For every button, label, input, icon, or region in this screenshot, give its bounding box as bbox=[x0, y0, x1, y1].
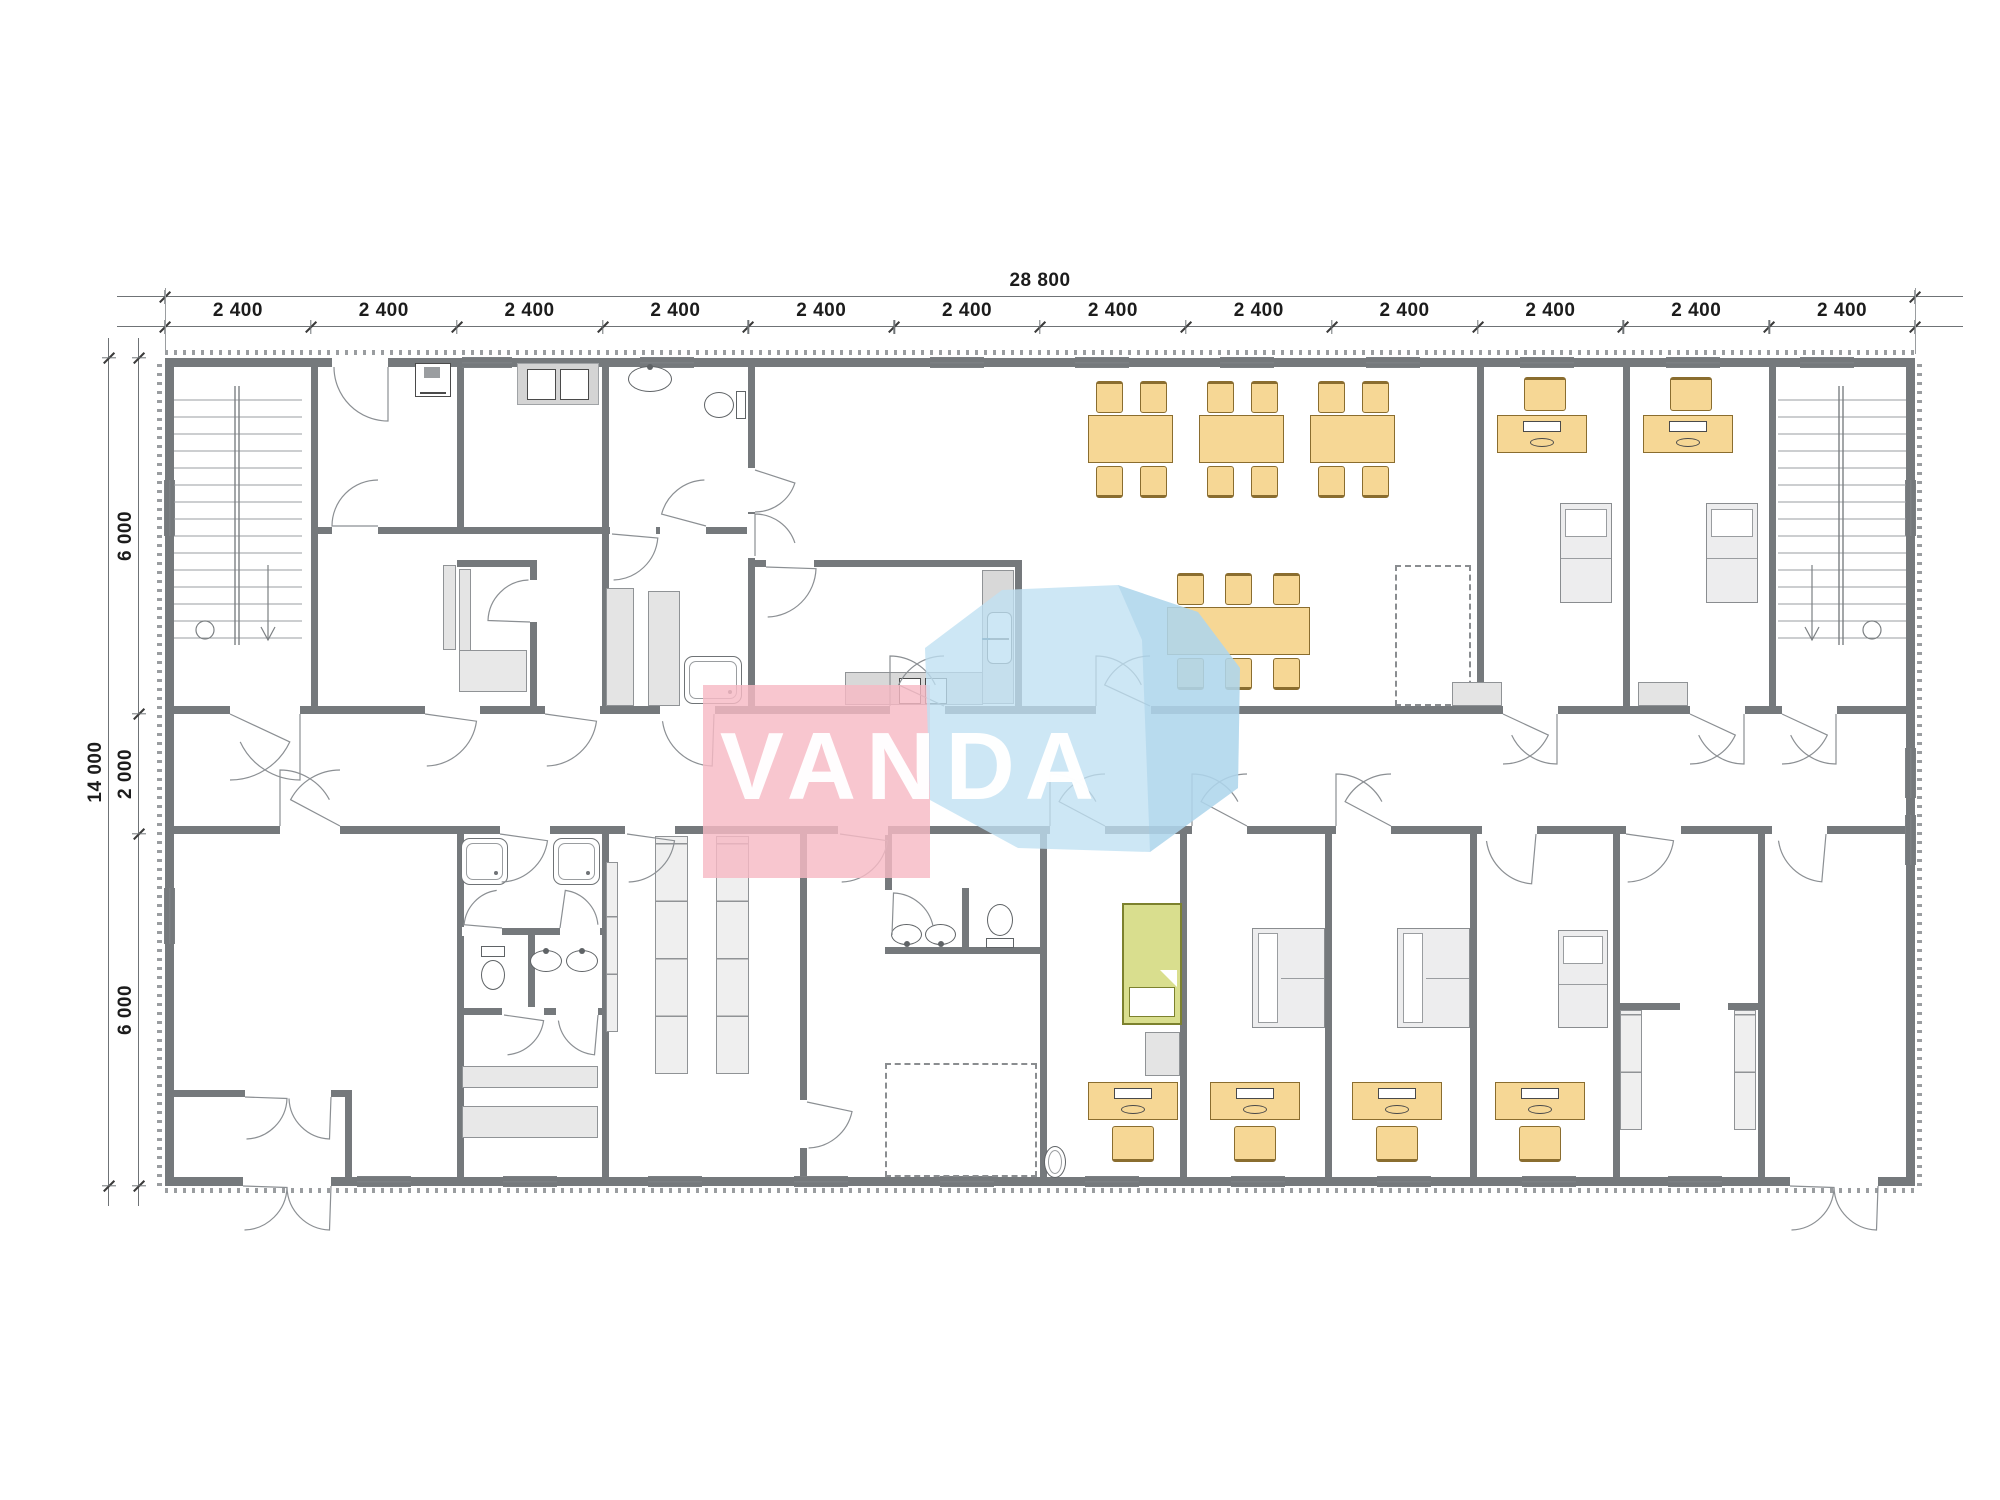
dimension-label-bay: 2 400 bbox=[796, 300, 846, 322]
dimension-label-bay: 2 400 bbox=[942, 300, 992, 322]
dimension-label-bay: 2 400 bbox=[213, 300, 263, 322]
dimension-tick-line bbox=[748, 320, 749, 334]
dimension-tick-line bbox=[456, 320, 457, 334]
dimension-tick-line bbox=[1623, 320, 1624, 334]
dimension-tick-line bbox=[1331, 320, 1332, 334]
dimension-label-bay: 2 400 bbox=[1234, 300, 1284, 322]
dimension-tick-line bbox=[132, 713, 146, 714]
dimension-label-bay: 2 400 bbox=[359, 300, 409, 322]
dimension-line-rows bbox=[138, 338, 139, 1206]
dimension-tick-line bbox=[1477, 320, 1478, 334]
dimension-label-total-height: 14 000 bbox=[85, 741, 107, 802]
dimension-line-total-width bbox=[117, 296, 1963, 297]
dimension-tick-line bbox=[310, 320, 311, 334]
dimension-layer: 28 8002 4002 4002 4002 4002 4002 4002 40… bbox=[0, 0, 2000, 1500]
dimension-label-total-width: 28 800 bbox=[1009, 270, 1070, 292]
dimension-label-bay: 2 400 bbox=[1817, 300, 1867, 322]
dimension-label-row: 2 000 bbox=[115, 749, 137, 799]
dimension-line-total-height bbox=[108, 338, 109, 1206]
dimension-label-bay: 2 400 bbox=[1380, 300, 1430, 322]
witness-line bbox=[1915, 288, 1916, 354]
dimension-tick-line bbox=[132, 833, 146, 834]
dimension-label-bay: 2 400 bbox=[650, 300, 700, 322]
dimension-tick-line bbox=[132, 357, 146, 358]
dimension-tick-line bbox=[893, 320, 894, 334]
dimension-tick-line bbox=[1039, 320, 1040, 334]
dimension-label-row: 6 000 bbox=[115, 985, 137, 1035]
dimension-label-bay: 2 400 bbox=[1671, 300, 1721, 322]
dimension-tick-line bbox=[102, 1185, 116, 1186]
dimension-tick-line bbox=[1185, 320, 1186, 334]
dimension-tick-line bbox=[132, 1185, 146, 1186]
dimension-label-bay: 2 400 bbox=[1088, 300, 1138, 322]
dimension-tick-line bbox=[602, 320, 603, 334]
witness-line bbox=[165, 288, 166, 354]
floorplan-canvas: 28 8002 4002 4002 4002 4002 4002 4002 40… bbox=[0, 0, 2000, 1500]
dimension-label-row: 6 000 bbox=[115, 511, 137, 561]
dimension-label-bay: 2 400 bbox=[505, 300, 555, 322]
dimension-tick-line bbox=[102, 357, 116, 358]
dimension-tick-line bbox=[1768, 320, 1769, 334]
dimension-label-bay: 2 400 bbox=[1525, 300, 1575, 322]
